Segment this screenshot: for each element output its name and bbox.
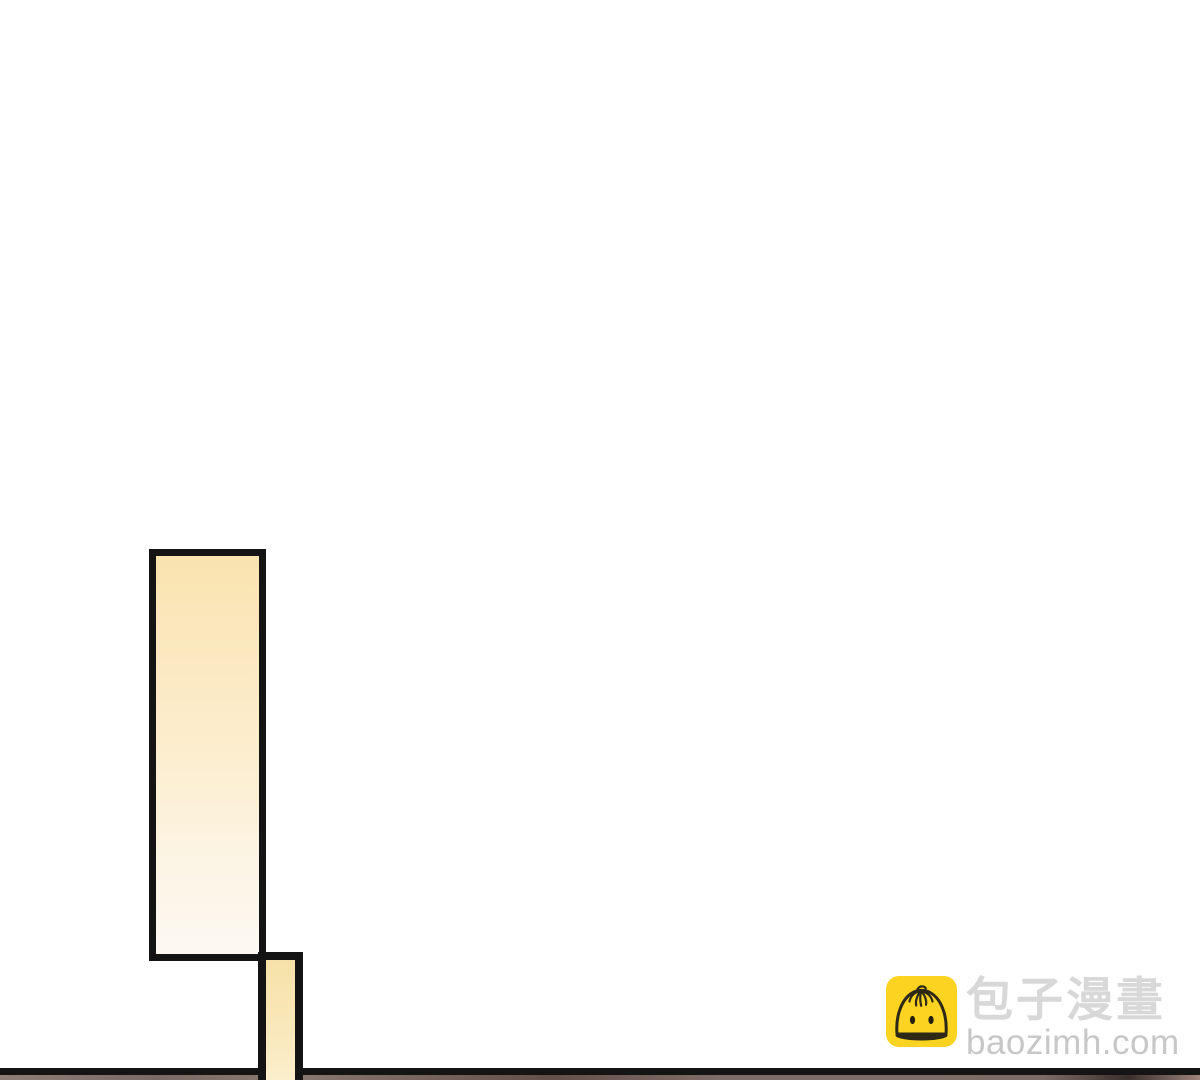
comic-panel-tall — [149, 549, 266, 961]
next-panel-edge — [0, 1075, 1200, 1080]
watermark-url-text: baozimh.com — [966, 1025, 1180, 1060]
watermark: 包子漫畫 baozimh.com — [886, 976, 1180, 1060]
watermark-brand-text: 包子漫畫 — [966, 976, 1180, 1023]
watermark-text: 包子漫畫 baozimh.com — [966, 976, 1180, 1060]
baozi-bun-icon — [886, 976, 957, 1047]
panel-divider-line — [0, 1068, 1200, 1075]
comic-page: 包子漫畫 baozimh.com — [0, 0, 1200, 1080]
comic-panel-strip — [258, 952, 303, 1080]
